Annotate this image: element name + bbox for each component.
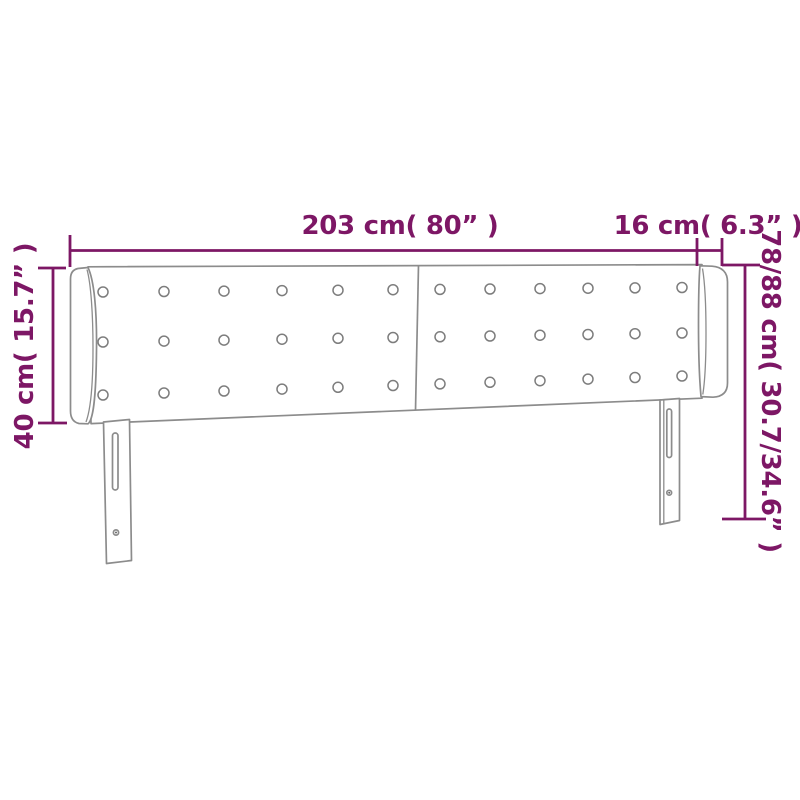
- right-leg-outline: [660, 399, 680, 525]
- dimension-ear-height: 40 cm( 15.7” ): [10, 243, 67, 450]
- button: [677, 328, 687, 338]
- button: [98, 337, 108, 347]
- button: [98, 390, 108, 400]
- dimension-diagram-page: 203 cm( 80” ) 16 cm( 6.3” ) 40 cm( 15.7”…: [0, 0, 800, 800]
- button: [435, 379, 445, 389]
- dimension-width: 203 cm( 80” ): [70, 211, 697, 267]
- button: [333, 333, 343, 343]
- left-leg-screw: [115, 532, 117, 534]
- button: [583, 330, 593, 340]
- button: [388, 333, 398, 343]
- width-label: 203 cm( 80” ): [301, 211, 498, 241]
- button: [583, 283, 593, 293]
- right-ear-outline: [699, 266, 728, 397]
- button: [333, 285, 343, 295]
- button: [535, 376, 545, 386]
- button: [485, 331, 495, 341]
- button: [677, 371, 687, 381]
- right-ear: [699, 266, 728, 397]
- button: [159, 388, 169, 398]
- button: [485, 377, 495, 387]
- button: [388, 285, 398, 295]
- total-height-label: 78/88 cm( 30.7/34.6” ): [755, 229, 785, 553]
- left-leg: [104, 420, 132, 564]
- button: [277, 286, 287, 296]
- button: [277, 334, 287, 344]
- right-leg: [660, 399, 680, 525]
- button: [630, 373, 640, 383]
- button: [333, 382, 343, 392]
- button: [485, 284, 495, 294]
- button: [677, 283, 687, 293]
- button: [159, 287, 169, 297]
- ear-height-label: 40 cm( 15.7” ): [10, 243, 40, 450]
- button: [219, 335, 229, 345]
- button: [159, 336, 169, 346]
- right-leg-screw: [668, 492, 670, 494]
- left-ear: [71, 268, 97, 424]
- headboard-drawing: [71, 265, 728, 564]
- button: [219, 286, 229, 296]
- button: [583, 374, 593, 384]
- button: [535, 284, 545, 294]
- button: [277, 384, 287, 394]
- headboard-dimension-diagram: 203 cm( 80” ) 16 cm( 6.3” ) 40 cm( 15.7”…: [0, 0, 800, 800]
- button: [630, 329, 640, 339]
- button: [535, 330, 545, 340]
- button: [630, 283, 640, 293]
- button: [435, 284, 445, 294]
- button: [219, 386, 229, 396]
- button: [98, 287, 108, 297]
- dimension-total-height: 78/88 cm( 30.7/34.6” ): [722, 229, 785, 553]
- button: [388, 381, 398, 391]
- button: [435, 332, 445, 342]
